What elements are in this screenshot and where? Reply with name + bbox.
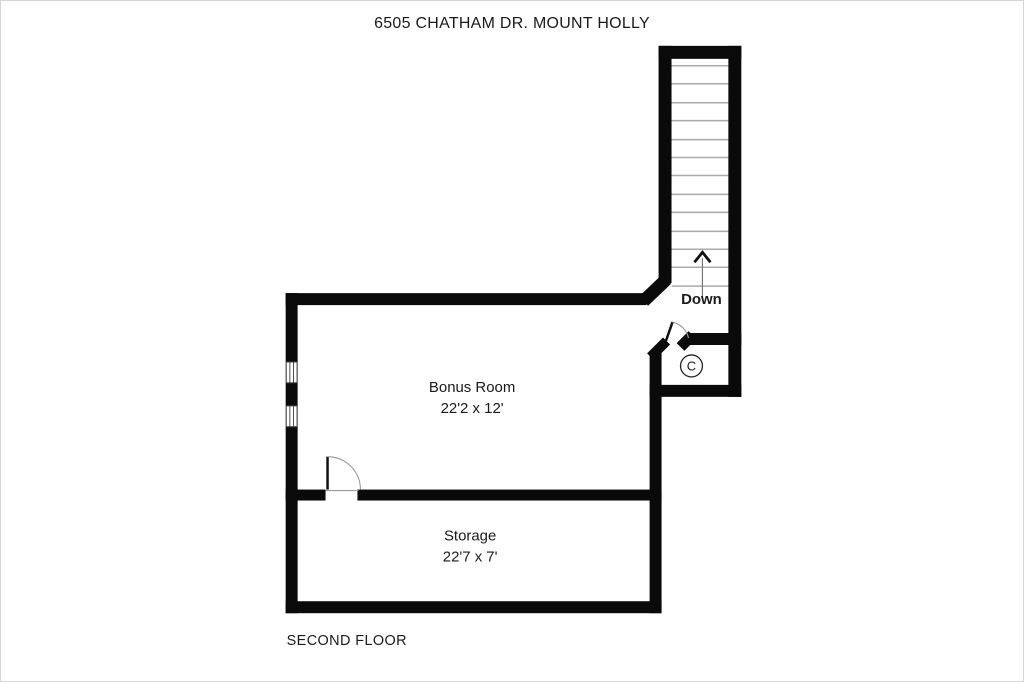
stair-treads bbox=[672, 66, 729, 286]
floor-plan: 6505 CHATHAM DR. MOUNT HOLLY bbox=[1, 1, 1023, 681]
left-wall bbox=[286, 293, 298, 613]
divider-wall-right bbox=[357, 490, 661, 501]
bonus-room-name: Bonus Room bbox=[429, 379, 515, 396]
window-symbol bbox=[285, 362, 298, 383]
right-wall-stub bbox=[651, 341, 667, 357]
stair-left-wall bbox=[659, 46, 672, 283]
bonus-room-dimensions: 22'2 x 12' bbox=[441, 400, 504, 417]
storage-room-name: Storage bbox=[444, 527, 496, 544]
floor-plan-page: 6505 CHATHAM DR. MOUNT HOLLY bbox=[0, 0, 1024, 682]
floor-label: SECOND FLOOR bbox=[287, 633, 407, 649]
closet-top-wall-cap bbox=[681, 335, 693, 347]
divider-wall-left bbox=[286, 490, 326, 501]
closet-label: C bbox=[687, 358, 696, 373]
stairs-down-label: Down bbox=[681, 291, 722, 308]
plan-title: 6505 CHATHAM DR. MOUNT HOLLY bbox=[374, 15, 650, 32]
closet: C bbox=[650, 322, 742, 397]
storage-bottom-wall bbox=[286, 601, 662, 613]
stair-wall-jog bbox=[644, 279, 667, 301]
storage-room: Storage 22'7 x 7' bbox=[286, 457, 662, 614]
bonus-top-wall bbox=[286, 293, 647, 305]
closet-bottom-wall bbox=[650, 385, 742, 397]
interior-door-swing bbox=[326, 457, 361, 491]
storage-room-dimensions: 22'7 x 7' bbox=[443, 548, 498, 565]
window-symbol bbox=[285, 406, 298, 427]
up-arrow-icon bbox=[694, 252, 710, 296]
